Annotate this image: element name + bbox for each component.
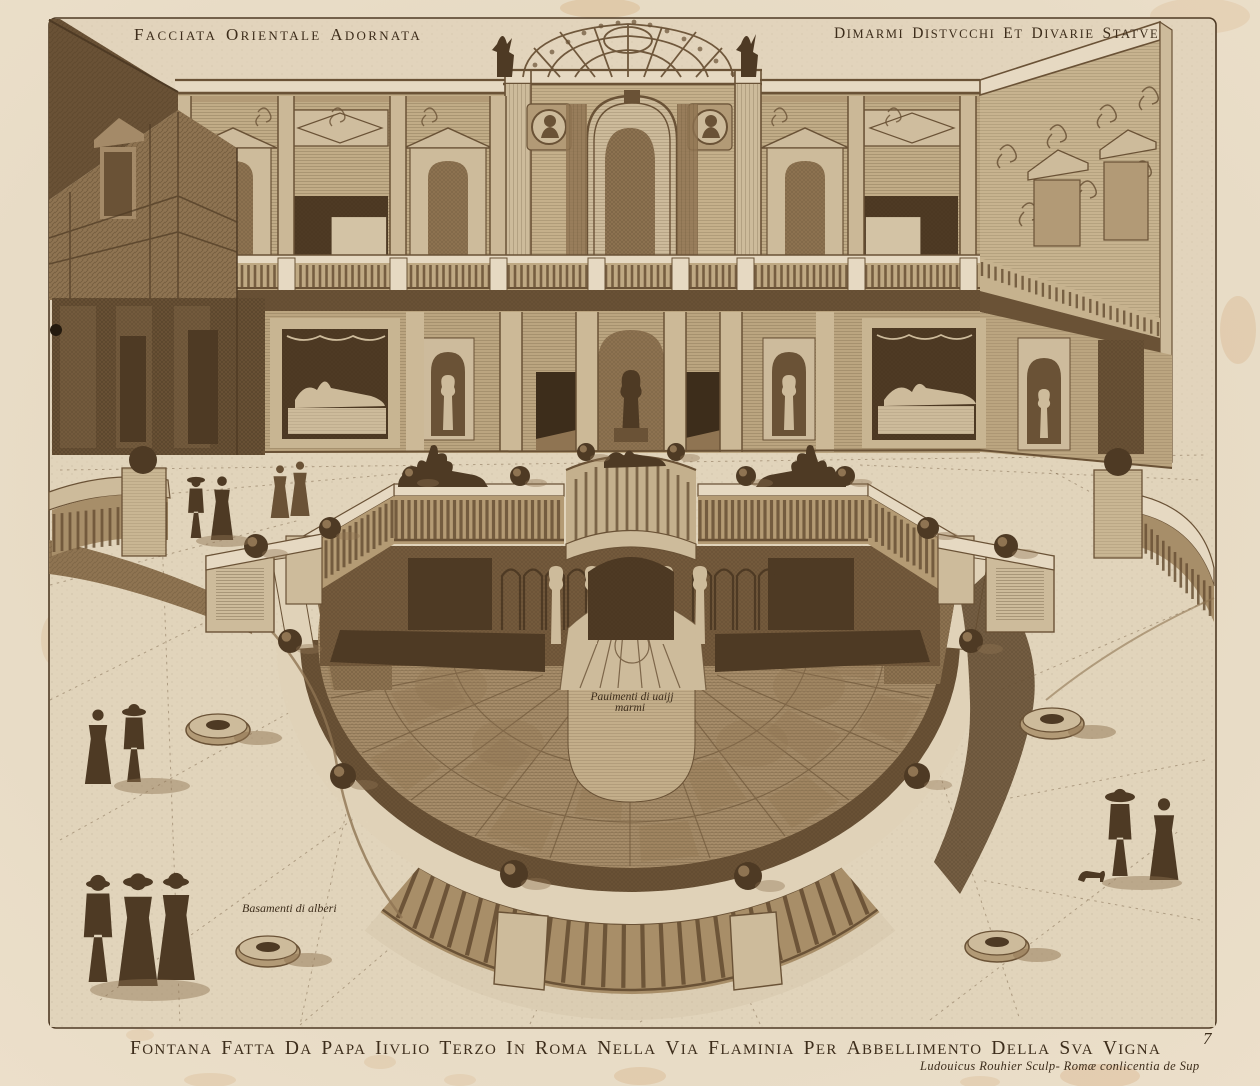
svg-text:DIMARMI DISTVCCHI ET DIVARIE S: DIMARMI DISTVCCHI ET DIVARIE STATVE <box>834 25 1167 42</box>
svg-text:Ludouicus Rouhier Sculp- Romæ: Ludouicus Rouhier Sculp- Romæ conlicenti… <box>919 1059 1200 1073</box>
svg-text:FONTANA FATTA DA PAPA IIVLIO T: FONTANA FATTA DA PAPA IIVLIO TERZO IN RO… <box>130 1038 1170 1059</box>
svg-text:marmi: marmi <box>615 702 645 714</box>
svg-text:FACCIATA ORIENTALE ADORNATA: FACCIATA ORIENTALE ADORNATA <box>134 25 431 44</box>
svg-text:Basamenti di alberi: Basamenti di alberi <box>242 901 337 915</box>
